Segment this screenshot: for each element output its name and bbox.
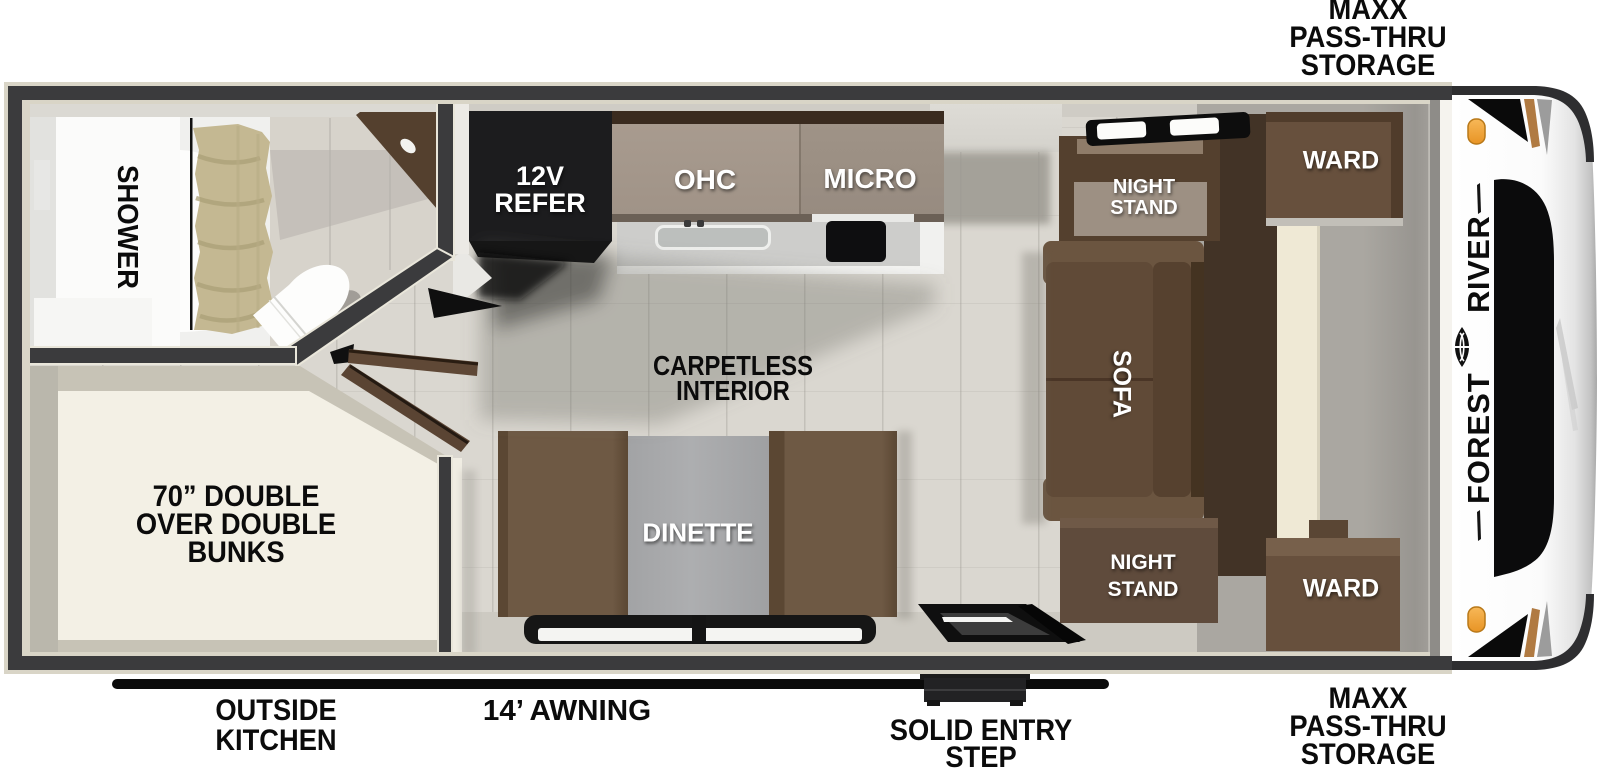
svg-text:RIVER: RIVER xyxy=(1461,216,1496,313)
svg-text:FOREST: FOREST xyxy=(1461,372,1496,504)
